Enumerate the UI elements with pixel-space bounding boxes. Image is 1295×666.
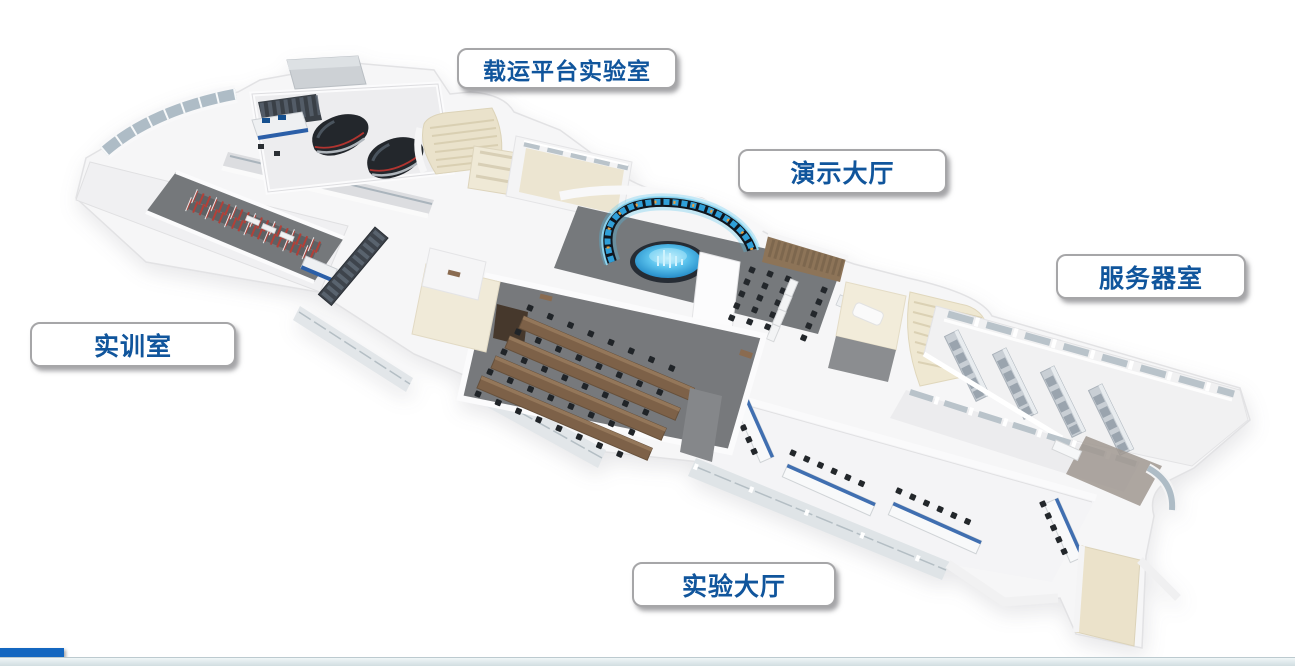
room-label-experiment-hall: 实验大厅 — [632, 562, 836, 607]
room-label-training-room: 实训室 — [30, 322, 236, 367]
footer-strip — [0, 657, 1295, 666]
footer-accent-bar — [0, 648, 64, 657]
room-label-server-room: 服务器室 — [1056, 254, 1246, 299]
roof-unit — [287, 56, 366, 89]
room-label-carrier-platform-lab: 载运平台实验室 — [457, 48, 677, 89]
slide: 载运平台实验室 演示大厅 服务器室 实训室 实验大厅 — [0, 0, 1295, 666]
room-label-demo-hall: 演示大厅 — [738, 149, 947, 194]
hologram-disc — [630, 241, 706, 283]
room-tan-lower-right — [1076, 546, 1178, 646]
